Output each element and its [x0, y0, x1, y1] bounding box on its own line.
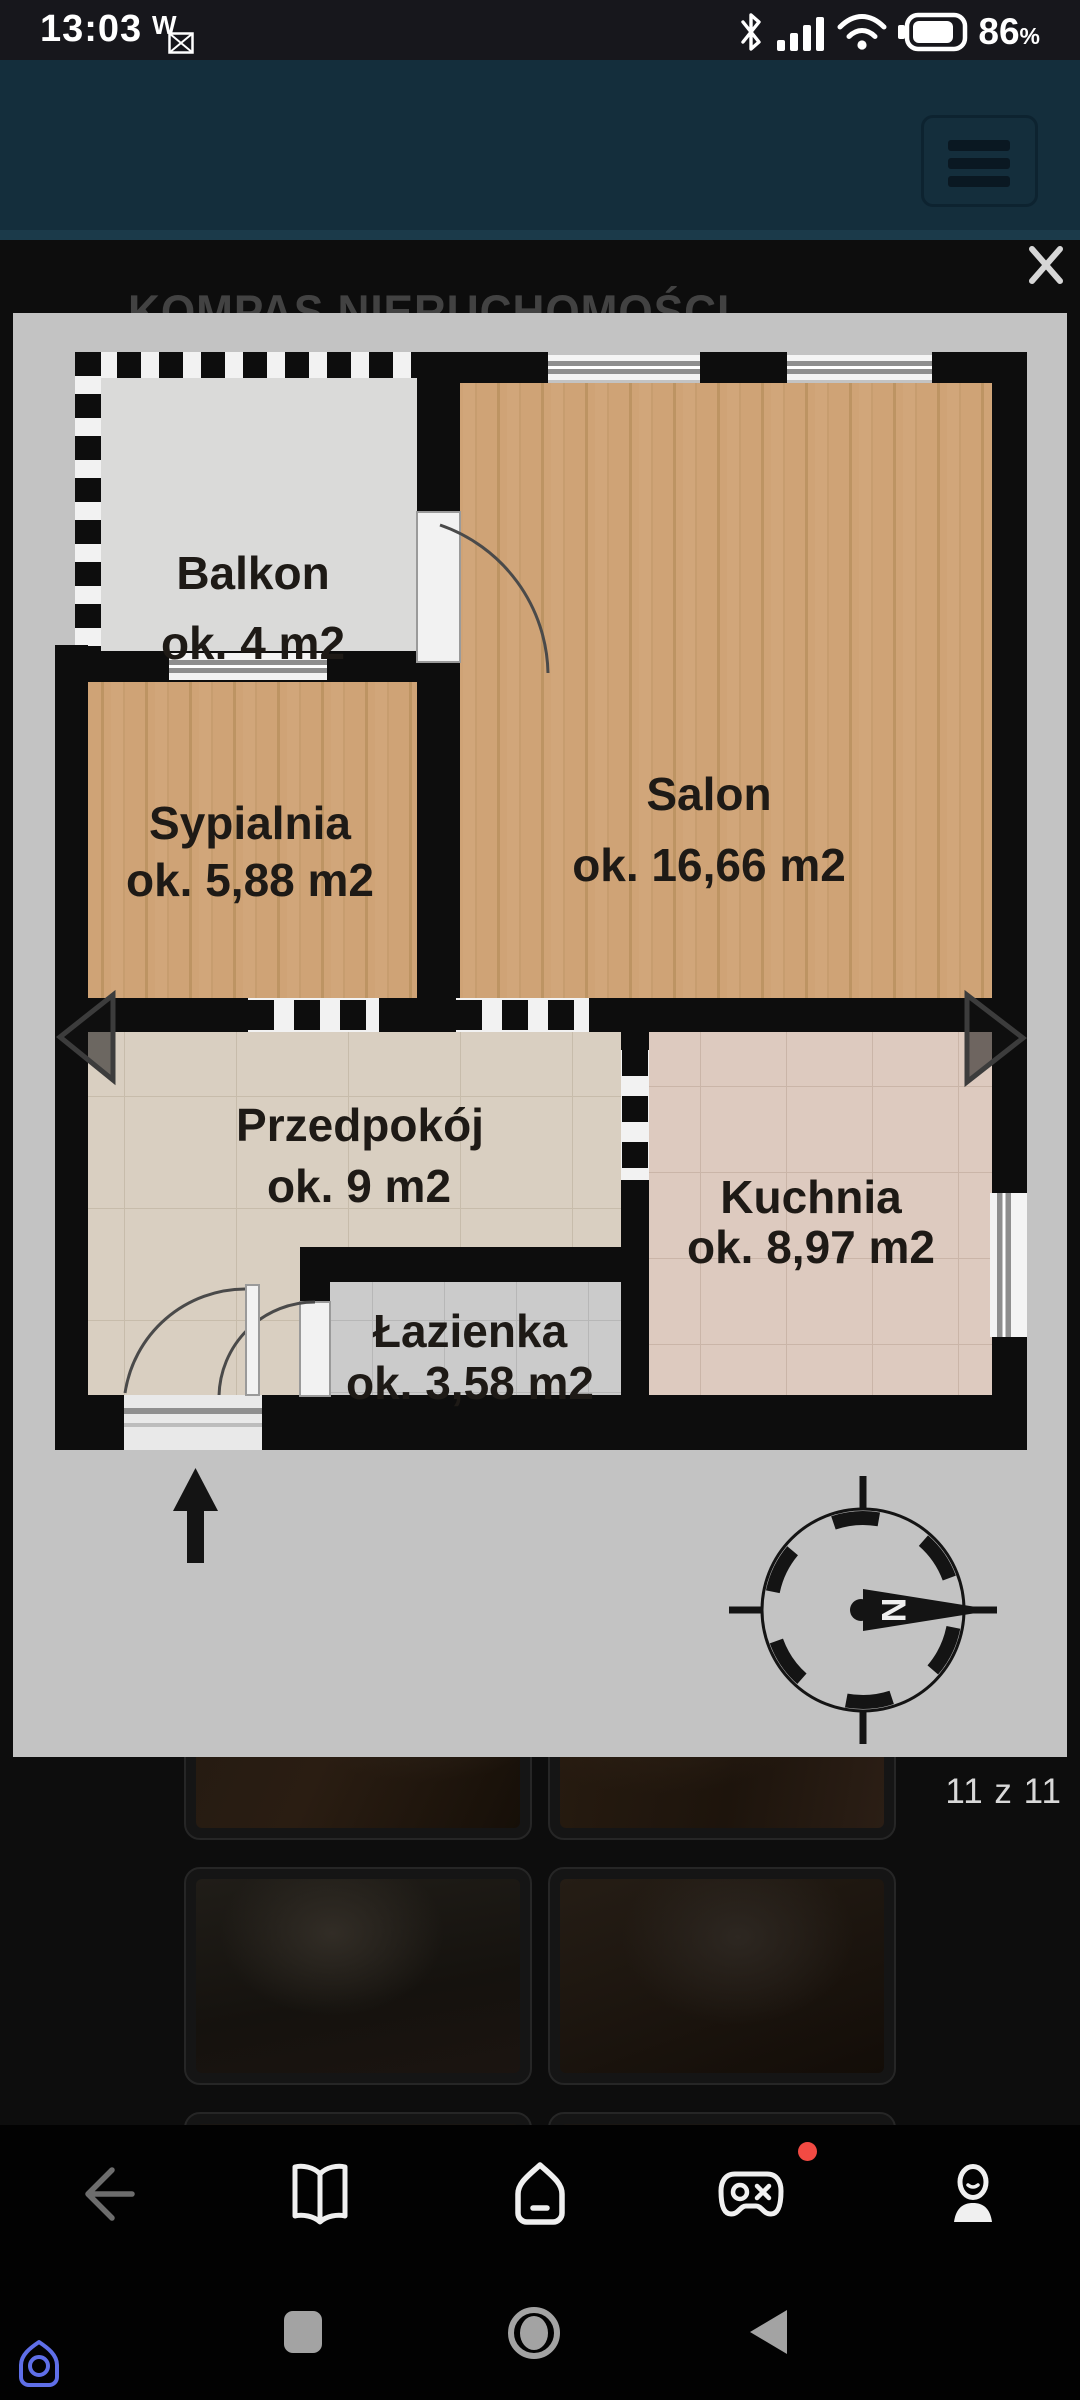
room-label: Balkon [176, 547, 329, 599]
room-label: Przedpokój [236, 1099, 484, 1151]
menu-button[interactable] [921, 115, 1038, 207]
window-icon [990, 1193, 1027, 1337]
photo-counter: 11 z 11 [945, 1772, 1062, 1812]
room-area: ok. 3,58 m2 [346, 1357, 594, 1409]
battery-icon [898, 12, 968, 52]
signal-icon [776, 12, 826, 52]
floor-plan-image: Balkon ok. 4 m2 Salon ok. 16,66 m2 Sypia… [13, 313, 1067, 1757]
room-area: ok. 4 m2 [161, 617, 345, 669]
battery-percent: 86% [978, 11, 1040, 53]
wifi-icon [836, 12, 888, 52]
room-area: ok. 9 m2 [267, 1160, 451, 1212]
app-header [0, 60, 1080, 240]
recents-square-icon[interactable] [284, 2311, 322, 2353]
room-area: ok. 16,66 m2 [572, 839, 846, 891]
clock: 13:03 [40, 8, 142, 51]
notification-dot [798, 2142, 817, 2161]
home-circle-icon[interactable] [506, 2305, 562, 2361]
bluetooth-icon [736, 10, 766, 54]
room-label: Sypialnia [149, 797, 351, 849]
app-logo-icon[interactable] [16, 2338, 62, 2388]
status-icons: 86% [736, 10, 1040, 54]
close-icon[interactable] [1022, 241, 1070, 289]
home-icon[interactable] [498, 2152, 582, 2236]
back-triangle-icon[interactable] [746, 2308, 790, 2356]
vowifi-message-icon: W [152, 10, 177, 41]
person-icon[interactable] [931, 2152, 1015, 2236]
room-area: ok. 8,97 m2 [687, 1221, 935, 1273]
back-arrow-icon[interactable] [68, 2152, 152, 2236]
game-controller-icon[interactable] [709, 2152, 793, 2236]
compass-north-letter: N [874, 1598, 912, 1623]
room-area: ok. 5,88 m2 [126, 854, 374, 906]
gallery-thumbnail[interactable] [184, 1867, 532, 2085]
gallery-thumbnail[interactable] [548, 1867, 896, 2085]
room-label: Kuchnia [720, 1171, 902, 1223]
room-label: Łazienka [373, 1305, 568, 1357]
room-label: Salon [646, 768, 771, 820]
status-bar: 13:03 W 86% [0, 0, 1080, 60]
book-icon[interactable] [278, 2152, 362, 2236]
salon-floor [460, 383, 992, 998]
